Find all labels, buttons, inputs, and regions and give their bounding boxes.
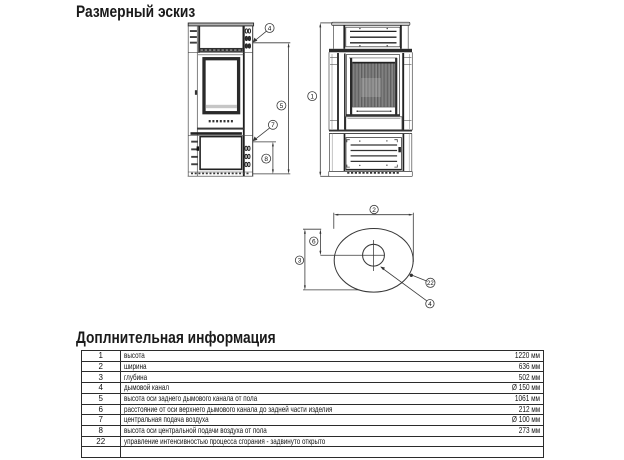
svg-text:1: 1 bbox=[310, 94, 314, 101]
svg-text:6: 6 bbox=[312, 239, 316, 246]
svg-text:4: 4 bbox=[268, 25, 272, 32]
svg-text:2: 2 bbox=[372, 207, 376, 214]
svg-text:5: 5 bbox=[280, 103, 284, 110]
svg-text:3: 3 bbox=[298, 258, 302, 265]
svg-text:4: 4 bbox=[428, 301, 432, 308]
svg-text:22: 22 bbox=[427, 281, 434, 287]
svg-text:8: 8 bbox=[264, 156, 268, 163]
svg-text:7: 7 bbox=[271, 122, 275, 129]
